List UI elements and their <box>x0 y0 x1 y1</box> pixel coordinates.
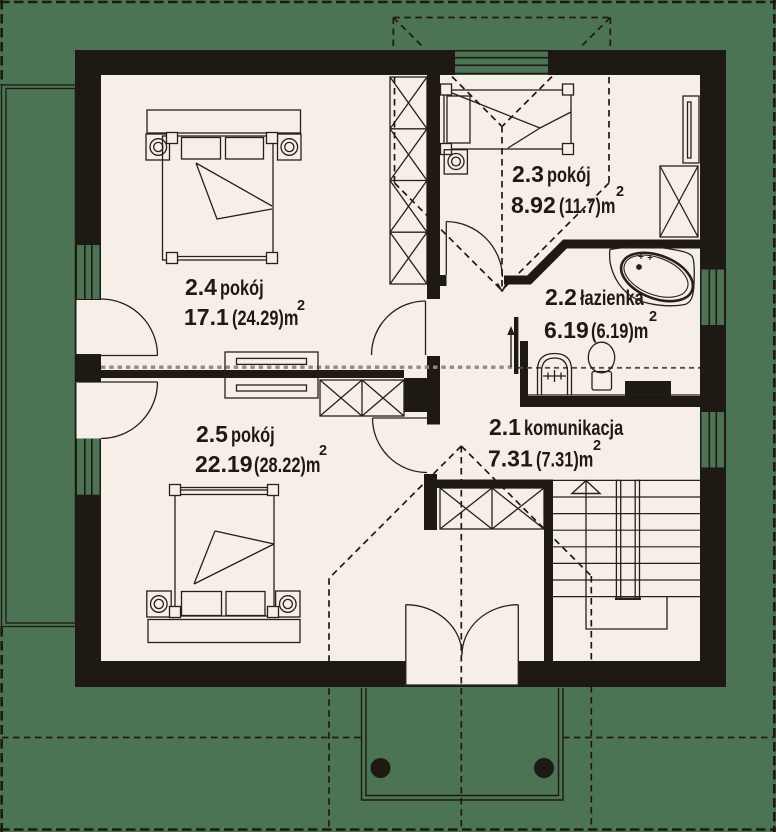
svg-text:łazienka: łazienka <box>580 286 644 309</box>
svg-text:2.3: 2.3 <box>512 161 544 187</box>
svg-text:(7.31)m: (7.31)m <box>536 448 593 471</box>
svg-text:2.2: 2.2 <box>545 284 577 310</box>
svg-text:17.1: 17.1 <box>184 304 229 330</box>
svg-text:2.4: 2.4 <box>185 274 217 300</box>
svg-text:2: 2 <box>593 438 601 454</box>
svg-text:komunikacja: komunikacja <box>524 416 624 439</box>
svg-text:2.1: 2.1 <box>489 414 521 440</box>
svg-text:pokój: pokój <box>547 163 591 186</box>
svg-text:(28.22)m: (28.22)m <box>254 453 320 476</box>
svg-text:2.5: 2.5 <box>196 421 228 447</box>
svg-text:2: 2 <box>616 184 624 200</box>
svg-text:8.92: 8.92 <box>511 192 556 218</box>
svg-text:2: 2 <box>297 298 305 314</box>
svg-text:22.19: 22.19 <box>195 451 253 477</box>
svg-text:pokój: pokój <box>231 423 275 446</box>
svg-text:6.19: 6.19 <box>544 317 589 343</box>
svg-text:(24.29)m: (24.29)m <box>232 306 298 329</box>
svg-text:(6.19)m: (6.19)m <box>591 319 648 342</box>
svg-text:7.31: 7.31 <box>488 446 533 472</box>
svg-text:2: 2 <box>319 443 327 459</box>
svg-text:pokój: pokój <box>220 276 264 299</box>
svg-text:2: 2 <box>649 309 657 325</box>
svg-text:(11.7)m: (11.7)m <box>559 194 615 217</box>
